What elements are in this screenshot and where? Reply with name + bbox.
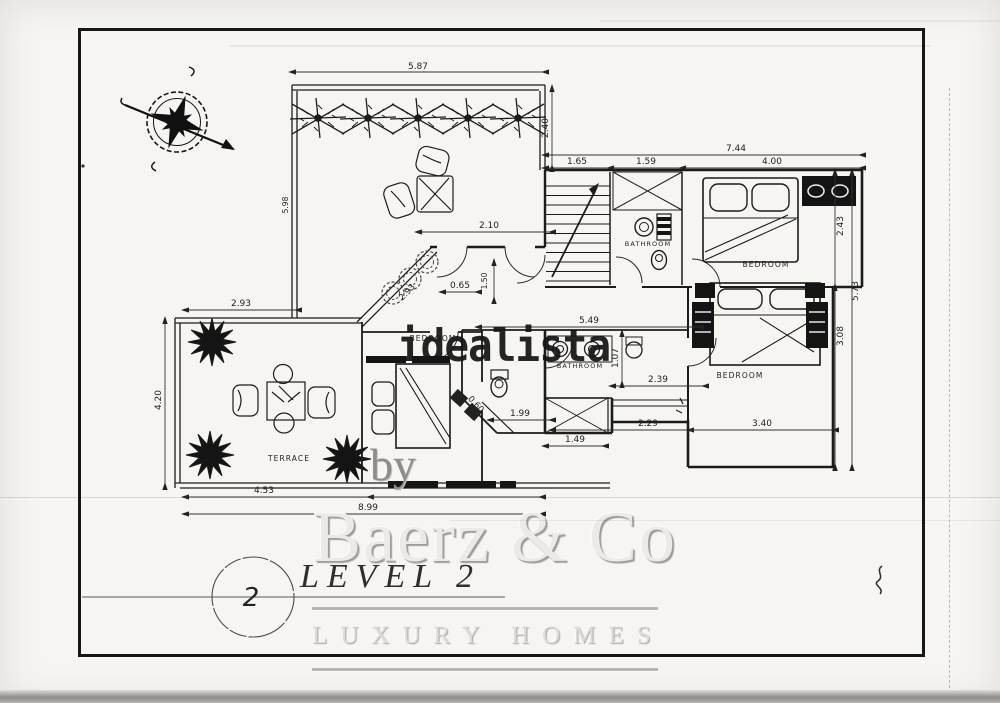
- dim-label: 7.44: [726, 144, 746, 154]
- dim-label: 4.20: [154, 390, 164, 410]
- dim-label: 3.08: [836, 326, 846, 346]
- by-watermark: by: [370, 438, 416, 491]
- sheet-number: 2: [243, 583, 260, 613]
- bedroom-top-right: [703, 176, 856, 262]
- dim-label: 5.73: [851, 281, 861, 301]
- brand-rule-bottom: [312, 668, 658, 671]
- brand-watermark: Baerz & Co: [300, 500, 690, 576]
- staircase: [546, 183, 610, 281]
- room-label-bedroom-middle: BEDROOM: [717, 371, 764, 380]
- room-label-bathroom-top: BATHROOM: [625, 240, 671, 248]
- brand-tagline-watermark: LUXURY HOMES: [312, 622, 658, 650]
- room-label-terrace: TERRACE: [267, 454, 310, 463]
- compass-rose-icon: [121, 67, 235, 171]
- scan-squiggle: [876, 566, 882, 594]
- dim-label: 2.10: [479, 221, 499, 231]
- scanned-floor-plan-page: 5.87 2.40 7.44 1.65 1.59 4.00 2.43 5.73 …: [0, 0, 1000, 703]
- dim-label: 5.98: [281, 196, 290, 213]
- dim-label: 1.49: [565, 435, 585, 445]
- dim-label: 2.39: [648, 375, 668, 385]
- dim-label: 2.29: [638, 419, 658, 429]
- room-label-bedroom-top: BEDROOM: [743, 260, 790, 269]
- dim-label: 1.65: [567, 157, 587, 167]
- dim-label: 1.99: [510, 409, 530, 419]
- terrace-table-set: [233, 365, 335, 434]
- dim-label: 3.40: [752, 419, 772, 429]
- dim-label: 1.59: [636, 157, 656, 167]
- dim-label: 5.87: [408, 62, 428, 72]
- dim-label: 4.00: [762, 157, 782, 167]
- scan-speck: [81, 164, 84, 167]
- brand-rule-top: [312, 607, 658, 610]
- dim-label: 2.40: [541, 118, 551, 138]
- dim-label: 0.65: [450, 281, 470, 291]
- dim-label: 2.43: [836, 216, 846, 236]
- dim-label: 2.93: [231, 299, 251, 309]
- patio-furniture: [382, 145, 453, 220]
- upper-terrace: [290, 85, 546, 318]
- dim-label: 4.53: [254, 486, 274, 496]
- idealista-watermark: idealista: [397, 320, 610, 372]
- bathroom-top: [613, 172, 682, 270]
- dim-label: 1.50: [480, 272, 489, 289]
- dimension-lines: [165, 72, 862, 514]
- dim-label: 1.07: [611, 348, 621, 368]
